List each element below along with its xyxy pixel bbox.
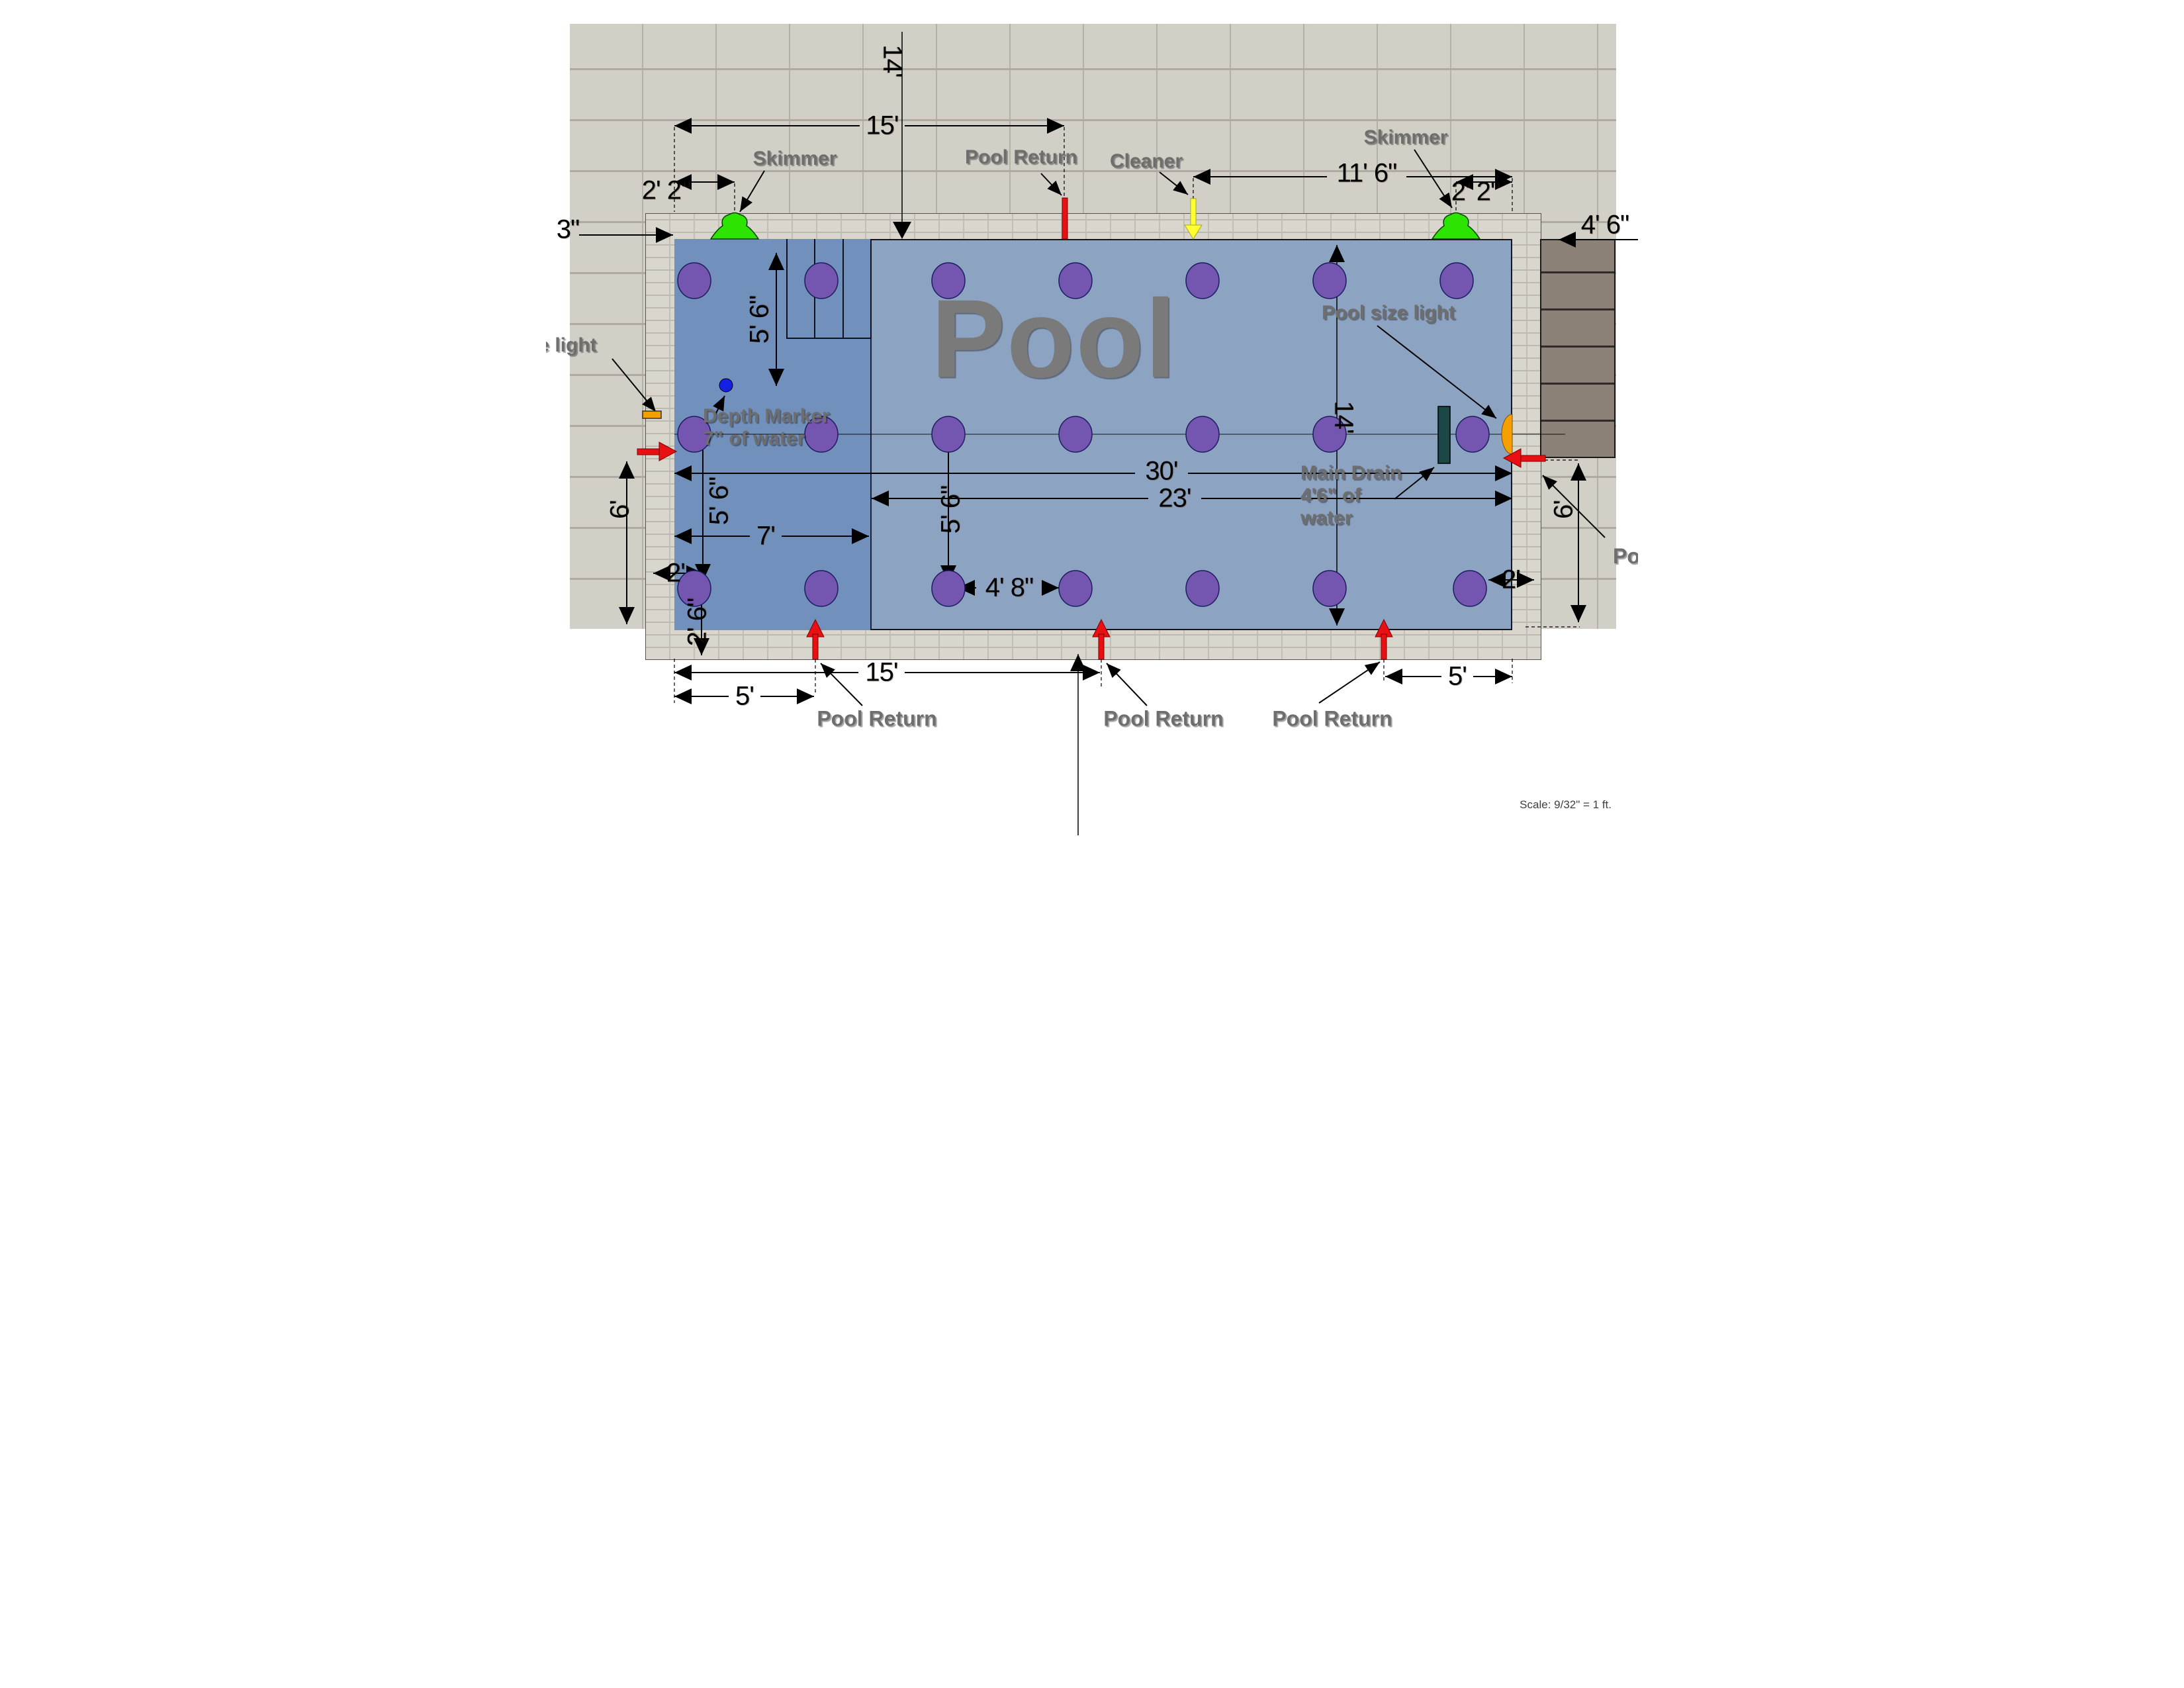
pool-return-bottom2-icon bbox=[1093, 620, 1110, 659]
dim-top-15: 15' bbox=[866, 111, 898, 141]
main-drain-line2: 4'6" of bbox=[1300, 485, 1402, 507]
dim-left-3in: 3" bbox=[557, 215, 579, 245]
dim-right-6: 6' bbox=[1549, 500, 1579, 519]
dim-skimmer-right-offset: 2' 2" bbox=[1451, 177, 1499, 207]
dim-center-5-6: 5' 6" bbox=[936, 486, 966, 534]
dim-upper-left-5-6: 5' 6" bbox=[745, 296, 775, 344]
scale-note: Scale: 9/32" = 1 ft. bbox=[1469, 798, 1612, 812]
dim-bottom-5-right: 5' bbox=[1448, 662, 1467, 692]
pool-return-bottom1-icon bbox=[807, 620, 824, 659]
main-drain-line1: Main Drain bbox=[1300, 462, 1402, 485]
cleaner-icon bbox=[1185, 199, 1202, 239]
main-drain-icon bbox=[1438, 406, 1450, 463]
label-pool-return-top: Pool Return bbox=[965, 146, 1077, 169]
light-left-icon bbox=[643, 411, 661, 418]
label-depth-marker: Depth Marker 7" of water bbox=[703, 405, 830, 450]
label-pool-size-light: Pool size light bbox=[1322, 302, 1455, 324]
dim-width-14: 14' bbox=[1329, 400, 1359, 433]
dim-deep-23: 23' bbox=[1158, 484, 1191, 514]
dim-right-2: 2' bbox=[1502, 565, 1520, 595]
main-drain-line3: water bbox=[1300, 507, 1402, 530]
skimmer-right-icon bbox=[1432, 213, 1480, 240]
dim-top-offset-14: 14' bbox=[878, 44, 907, 77]
dim-stairs-4-6: 4' 6" bbox=[1581, 211, 1629, 240]
label-light-left-cut: pe light bbox=[546, 334, 597, 357]
pool-return-bottom3-icon bbox=[1375, 620, 1392, 659]
label-cleaner: Cleaner bbox=[1110, 150, 1183, 173]
dim-lower-left-5-6: 5' 6" bbox=[705, 477, 735, 525]
depth-marker-line1: Depth Marker bbox=[703, 405, 830, 428]
dim-corner-2-6: 2' 6" bbox=[683, 598, 713, 646]
dim-shallow-7: 7' bbox=[756, 522, 775, 551]
dim-bottom-15: 15' bbox=[865, 658, 897, 688]
label-pool-return-right-cut: Po bbox=[1613, 544, 1638, 569]
label-pool-return-bottom1: Pool Return bbox=[817, 707, 936, 731]
dim-bottom-5-left: 5' bbox=[735, 682, 754, 712]
label-skimmer-right: Skimmer bbox=[1364, 126, 1448, 149]
label-pool-return-bottom2: Pool Return bbox=[1103, 707, 1223, 731]
label-pool-return-bottom3: Pool Return bbox=[1272, 707, 1392, 731]
pool-return-top-icon bbox=[1062, 198, 1068, 239]
light-right-icon bbox=[1502, 414, 1512, 454]
dim-dot-gap-4-8: 4' 8" bbox=[985, 573, 1033, 603]
dim-cleaner-offset: 11' 6" bbox=[1337, 159, 1397, 189]
dim-left-2: 2' bbox=[666, 559, 685, 588]
dim-skimmer-left-offset: 2' 2" bbox=[642, 176, 690, 206]
depth-marker-line2: 7" of water bbox=[703, 428, 830, 450]
depth-marker-dot bbox=[719, 379, 733, 392]
dim-length-30: 30' bbox=[1145, 457, 1177, 487]
pool-title: Pool bbox=[931, 275, 1177, 403]
arrow-down-top14 bbox=[893, 222, 911, 239]
skimmer-left-icon bbox=[711, 213, 758, 240]
label-skimmer-left: Skimmer bbox=[753, 148, 837, 170]
label-main-drain: Main Drain 4'6" of water bbox=[1300, 462, 1402, 530]
pool-plan-page: Pool 14' 15' 2' 2" 2' 2" 11' 6" 3" 4' 6"… bbox=[546, 0, 1638, 844]
dim-left-6: 6' bbox=[606, 500, 635, 519]
pool-return-left-icon bbox=[637, 442, 676, 461]
